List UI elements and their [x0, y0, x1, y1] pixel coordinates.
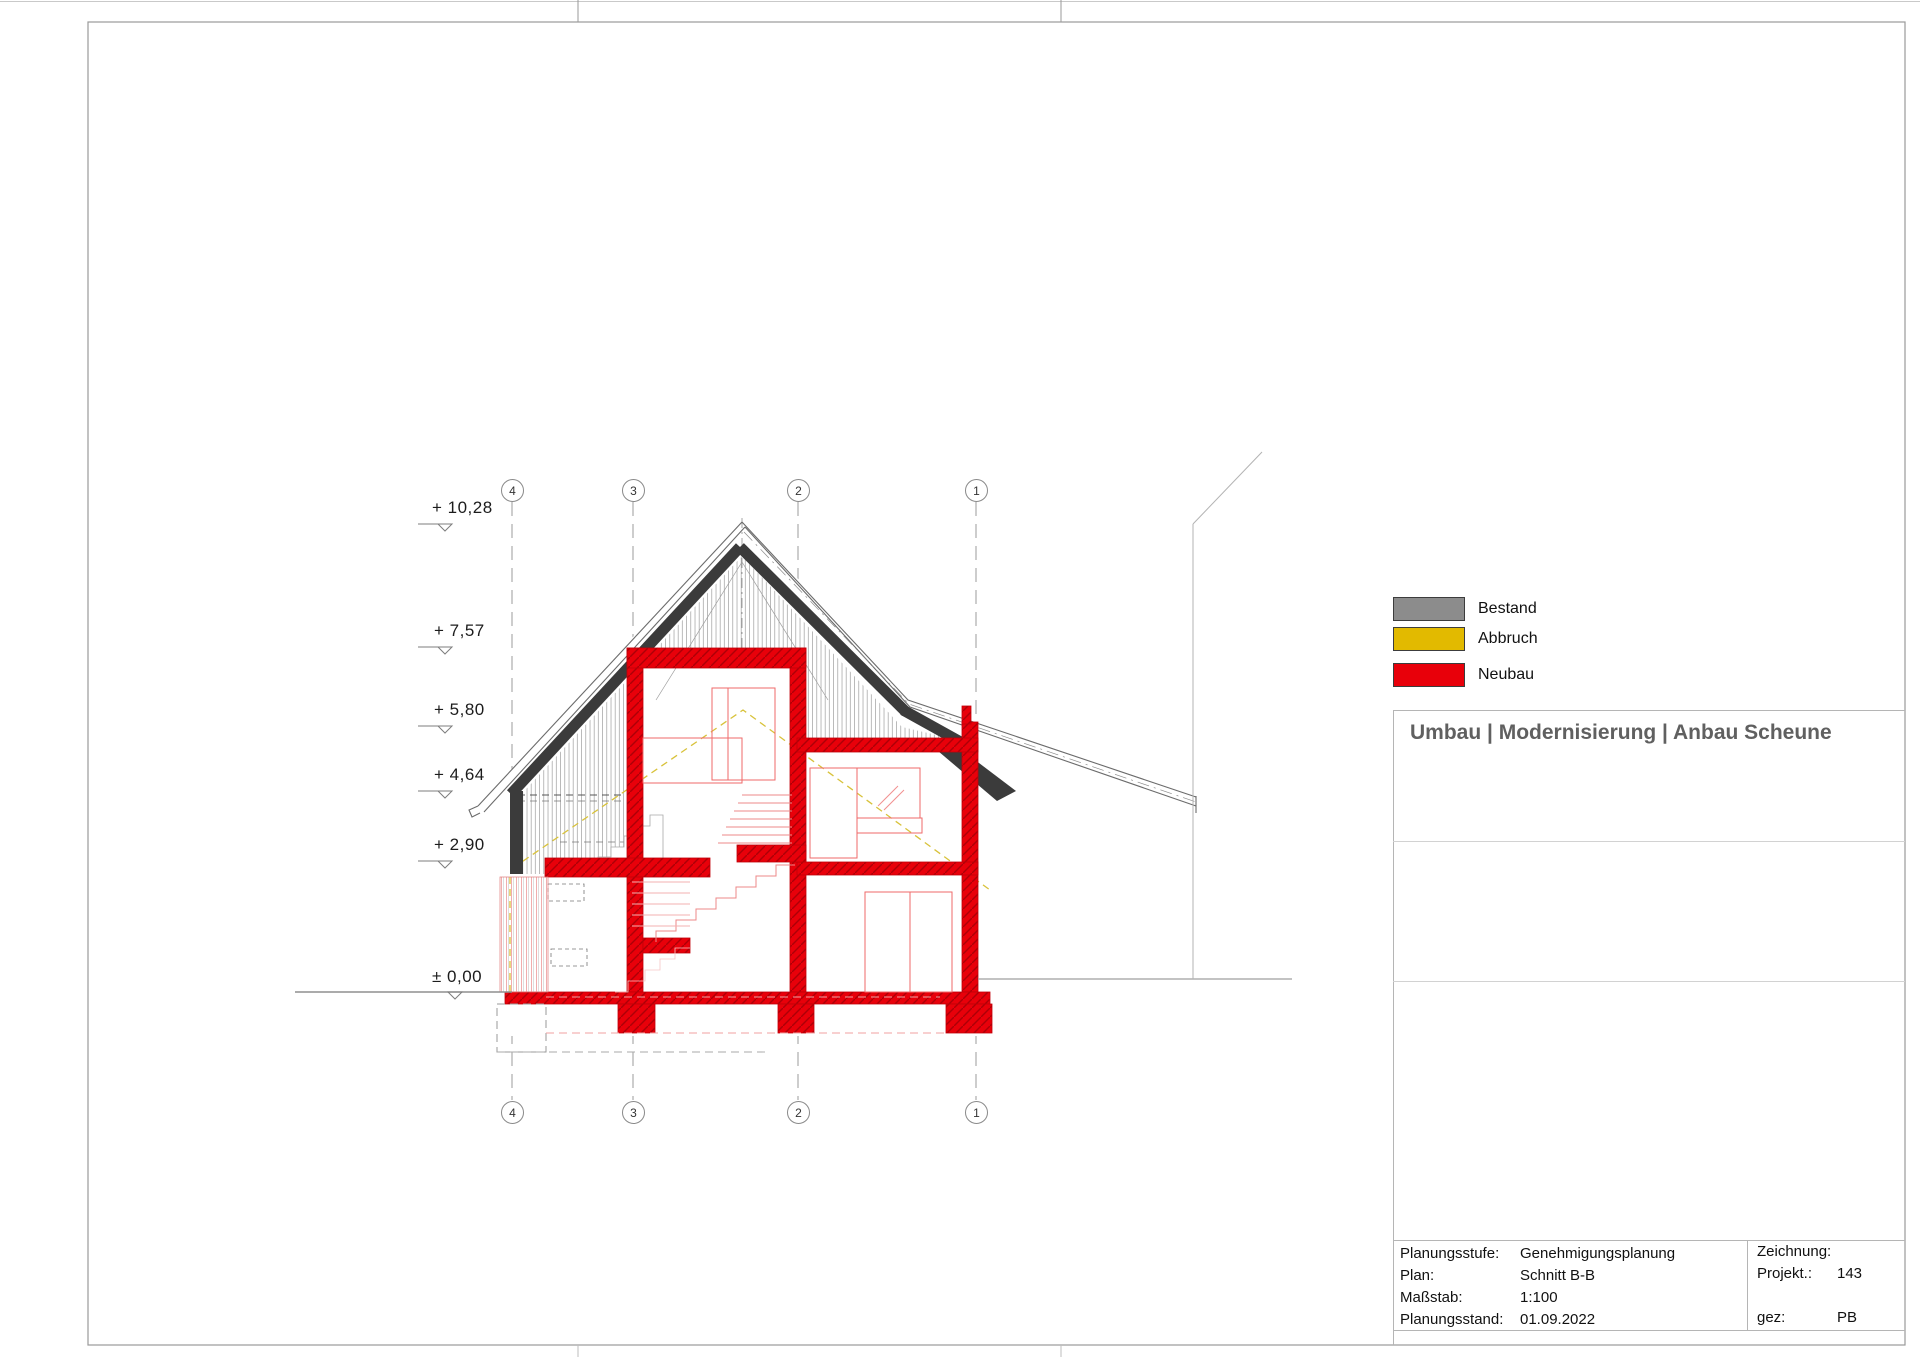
neighbor-roof-line — [1193, 452, 1262, 524]
grid-bubble-top: 3 — [622, 479, 645, 502]
titleblock-label: Planungsstand: — [1400, 1311, 1503, 1328]
titleblock-label: Zeichnung: — [1757, 1243, 1831, 1260]
wall-axis1-stub — [962, 706, 971, 724]
elevation-label: + 7,57 — [434, 621, 485, 641]
wall-axis1 — [962, 722, 978, 992]
legend-label: Bestand — [1478, 600, 1537, 618]
grid-bubble-bottom: 4 — [501, 1101, 524, 1124]
footing — [778, 1004, 814, 1033]
aisle-slab — [545, 858, 710, 877]
elevation-label: ± 0,00 — [432, 967, 482, 987]
bestand-wall-stub — [510, 791, 523, 874]
footing — [946, 1004, 992, 1033]
titleblock-value: Genehmigungsplanung — [1520, 1245, 1675, 1262]
attic-ceiling-beam — [627, 648, 806, 668]
level-marker — [448, 992, 462, 999]
grid-bubble-bottom: 1 — [965, 1101, 988, 1124]
footing — [618, 1004, 655, 1033]
og-floor-slab — [797, 862, 978, 875]
titleblock-label: Projekt.: — [1757, 1265, 1812, 1282]
titleblock-value: 143 — [1837, 1265, 1862, 1282]
titleblock-value: Schnitt B-B — [1520, 1267, 1595, 1284]
plan-sheet: + 10,28 + 7,57 + 5,80 + 4,64 + 2,90 ± 0,… — [0, 0, 1920, 1357]
elevation-label: + 2,90 — [434, 835, 485, 855]
hidden-beam — [551, 949, 587, 966]
level-markers — [418, 524, 462, 999]
legend-swatch-neubau — [1393, 663, 1465, 687]
level-marker — [418, 726, 452, 733]
wall-axis3 — [627, 648, 643, 992]
page-frame — [0, 0, 1920, 1357]
level-marker — [418, 791, 452, 798]
legend-swatch-abbruch — [1393, 627, 1465, 651]
grid-bubble-top: 2 — [787, 479, 810, 502]
grid-bubble-top: 4 — [501, 479, 524, 502]
titleblock-label: gez: — [1757, 1309, 1785, 1326]
titleblock-value: 01.09.2022 — [1520, 1311, 1595, 1328]
elevation-label: + 4,64 — [434, 765, 485, 785]
legend-item: Neubau — [1393, 663, 1534, 687]
ground-slab — [505, 992, 990, 1004]
project-title: Umbau | Modernisierung | Anbau Scheune — [1410, 721, 1832, 745]
stair-landing-slab — [737, 845, 806, 862]
titleblock-label: Maßstab: — [1400, 1289, 1463, 1306]
legend-label: Neubau — [1478, 666, 1534, 684]
grid-bubble-top: 1 — [965, 479, 988, 502]
grid-bubble-bottom: 3 — [622, 1101, 645, 1124]
titleblock-value: 1:100 — [1520, 1289, 1558, 1306]
level-marker — [418, 524, 452, 531]
wall-axis2 — [790, 648, 806, 992]
aisle-wall-refurb — [500, 877, 548, 992]
grid-bubble-bottom: 2 — [787, 1101, 810, 1124]
legend-item: Abbruch — [1393, 627, 1538, 651]
legend-swatch-bestand — [1393, 597, 1465, 621]
legend-item: Bestand — [1393, 597, 1537, 621]
beam-stub — [643, 938, 690, 953]
elevation-label: + 10,28 — [432, 498, 493, 518]
titleblock-label: Plan: — [1400, 1267, 1434, 1284]
section-drawing-svg — [0, 0, 1920, 1357]
legend-label: Abbruch — [1478, 630, 1538, 648]
titleblock-label: Planungsstufe: — [1400, 1245, 1499, 1262]
titleblock-value: PB — [1837, 1309, 1857, 1326]
level-marker — [418, 647, 452, 654]
hidden-beam — [548, 884, 584, 901]
elevation-label: + 5,80 — [434, 700, 485, 720]
og-ceiling-slab — [797, 738, 978, 752]
level-marker — [418, 861, 452, 868]
